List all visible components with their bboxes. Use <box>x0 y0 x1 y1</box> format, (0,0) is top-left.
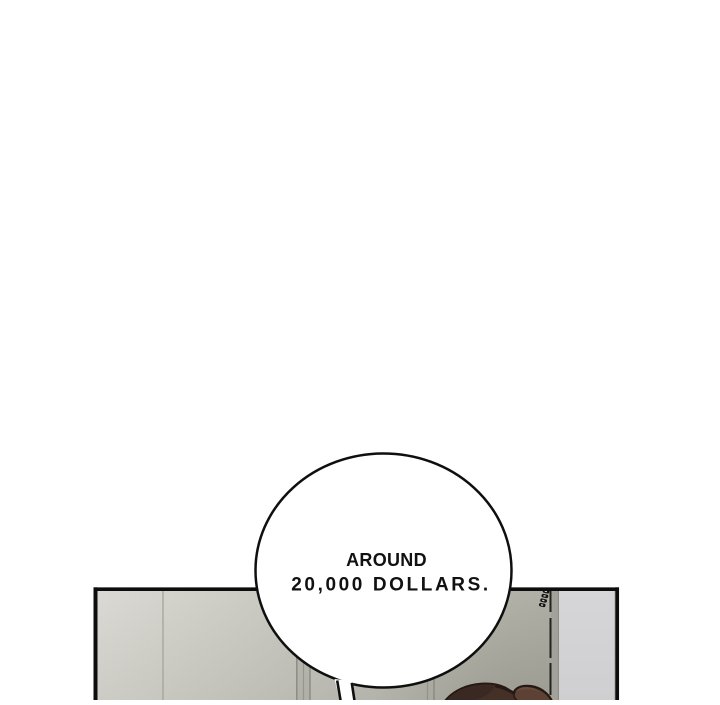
svg-text:20,000 DOLLARS.: 20,000 DOLLARS. <box>291 575 491 596</box>
svg-text:AROUND: AROUND <box>346 550 427 570</box>
